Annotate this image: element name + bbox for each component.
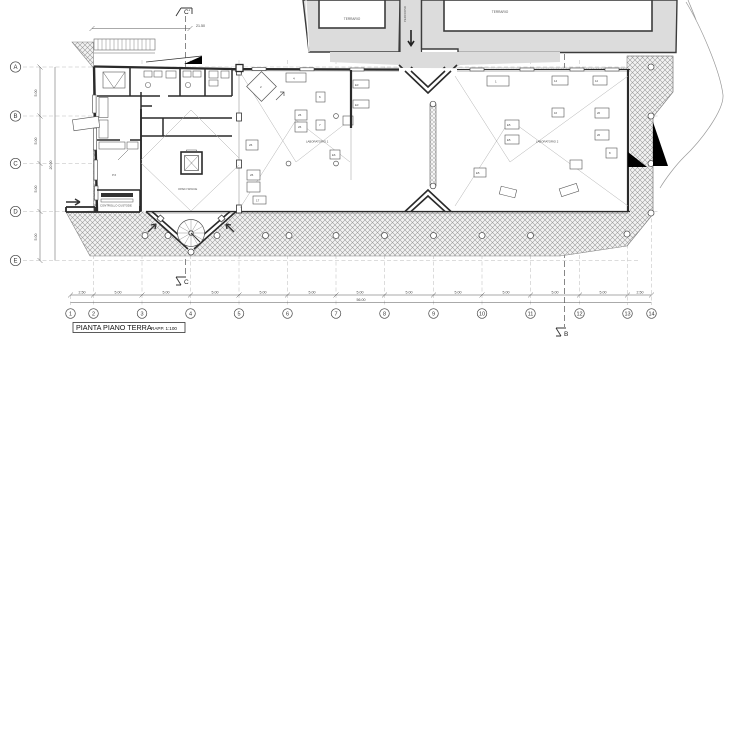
svg-text:7: 7 xyxy=(334,312,337,318)
svg-text:26: 26 xyxy=(597,133,601,137)
svg-text:5.00: 5.00 xyxy=(503,291,510,295)
svg-text:P.6: P.6 xyxy=(112,173,116,177)
svg-text:A: A xyxy=(13,65,17,71)
svg-text:10: 10 xyxy=(479,312,485,318)
svg-text:5.00: 5.00 xyxy=(260,291,267,295)
svg-text:6: 6 xyxy=(286,312,289,318)
svg-text:21.50: 21.50 xyxy=(196,24,205,28)
svg-text:5.00: 5.00 xyxy=(212,291,219,295)
svg-text:LABORATORIO 2: LABORATORIO 2 xyxy=(536,140,559,144)
svg-text:4: 4 xyxy=(189,312,192,318)
svg-text:C: C xyxy=(13,162,18,168)
svg-text:5.00: 5.00 xyxy=(406,291,413,295)
svg-text:5.00: 5.00 xyxy=(34,138,38,145)
svg-text:E5: E5 xyxy=(476,171,480,175)
svg-text:D: D xyxy=(13,210,18,216)
svg-text:B: B xyxy=(564,331,568,338)
svg-text:TERRARIO: TERRARIO xyxy=(344,17,361,21)
svg-text:5.00: 5.00 xyxy=(357,291,364,295)
svg-text:2: 2 xyxy=(92,312,95,318)
svg-text:56.00: 56.00 xyxy=(357,298,366,302)
svg-text:1: 1 xyxy=(69,312,72,318)
svg-text:5.00: 5.00 xyxy=(455,291,462,295)
svg-text:5.00: 5.00 xyxy=(552,291,559,295)
svg-text:5.00: 5.00 xyxy=(309,291,316,295)
svg-text:E5: E5 xyxy=(507,138,511,142)
svg-text:LABORATORIO 1: LABORATORIO 1 xyxy=(306,140,329,144)
svg-text:20.00: 20.00 xyxy=(49,161,53,170)
svg-text:OPEN SPACE: OPEN SPACE xyxy=(178,187,197,191)
svg-text:2.50: 2.50 xyxy=(637,291,644,295)
svg-text:8: 8 xyxy=(383,312,386,318)
svg-text:E5: E5 xyxy=(507,123,511,127)
svg-text:26: 26 xyxy=(298,113,302,117)
svg-text:E: E xyxy=(13,259,17,265)
svg-text:26: 26 xyxy=(298,125,302,129)
svg-text:5.00: 5.00 xyxy=(34,90,38,97)
svg-text:17: 17 xyxy=(256,199,260,203)
svg-text:5.00: 5.00 xyxy=(163,291,170,295)
svg-text:26: 26 xyxy=(250,173,254,177)
svg-text:14: 14 xyxy=(554,79,558,83)
svg-text:26: 26 xyxy=(597,111,601,115)
svg-text:13: 13 xyxy=(624,312,630,318)
svg-text:5.00: 5.00 xyxy=(600,291,607,295)
svg-text:16: 16 xyxy=(554,111,558,115)
svg-text:E6: E6 xyxy=(332,153,336,157)
svg-text:5.00: 5.00 xyxy=(34,234,38,241)
svg-text:C': C' xyxy=(184,9,190,16)
svg-text:26: 26 xyxy=(249,143,253,147)
svg-text:TERRARIO: TERRARIO xyxy=(492,10,509,14)
svg-text:5.00: 5.00 xyxy=(34,186,38,193)
svg-text:PERCORSO: PERCORSO xyxy=(403,5,407,22)
svg-text:11: 11 xyxy=(528,312,534,318)
svg-text:2.50: 2.50 xyxy=(79,291,86,295)
svg-text:5: 5 xyxy=(237,312,240,318)
svg-text:9: 9 xyxy=(432,312,435,318)
svg-text:E3: E3 xyxy=(355,103,359,107)
svg-text:14: 14 xyxy=(648,312,654,318)
svg-text:5.00: 5.00 xyxy=(115,291,122,295)
svg-text:C: C xyxy=(184,279,189,286)
svg-text:12: 12 xyxy=(595,79,599,83)
svg-text:12: 12 xyxy=(576,312,582,318)
svg-text:PIANTA PIANO TERRA: PIANTA PIANO TERRA xyxy=(76,323,152,332)
svg-text:CONTROLLO CUSTODE: CONTROLLO CUSTODE xyxy=(100,204,132,208)
svg-text:E3: E3 xyxy=(355,83,359,87)
svg-text:B: B xyxy=(13,114,17,120)
svg-text:RAPP. 1:100: RAPP. 1:100 xyxy=(151,326,177,331)
svg-text:3: 3 xyxy=(140,312,143,318)
